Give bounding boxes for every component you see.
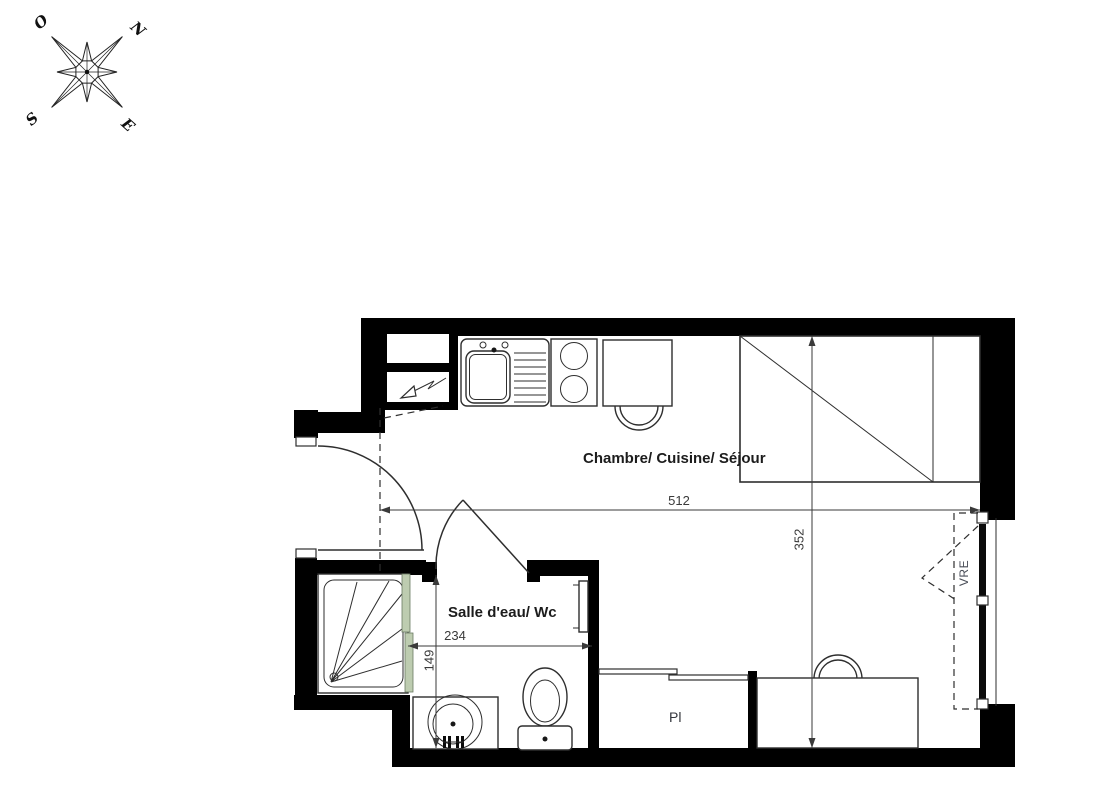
shutter-zone-dashed [954,513,978,709]
window-glazing-bottom [979,604,986,700]
closet-sliding-doors [599,669,748,680]
kitchen-desk [603,340,672,406]
floor-plan-page: O N S E [0,0,1108,800]
kitchen-sink [461,339,549,406]
main-room-label: Chambre/ Cuisine/ Séjour [583,450,766,467]
floor-plan [0,0,1108,800]
entrance-door-swing [318,446,422,550]
window [922,512,996,709]
shower-glass-top [402,574,410,632]
washbasin [413,695,498,749]
kitchen-table [603,340,672,430]
dim-main-width: 512 [659,493,699,508]
technical-closet [361,318,458,410]
dim-main-depth: 352 [792,520,807,560]
closet-label: Pl [669,709,681,725]
shower-glass-bottom [405,633,413,692]
bathroom-door [436,500,529,573]
desk [757,655,918,748]
toilet [518,668,572,750]
bed [740,336,980,482]
sink-drain-dot [492,348,497,353]
bathroom-label: Salle d'eau/ Wc [448,604,557,621]
window-shutter-label: VRE [957,553,971,593]
door-frame-bottom [296,549,316,558]
dim-bathroom-width: 234 [435,628,475,643]
flush-button [543,737,548,742]
bathroom-door-leaf [463,500,529,573]
shower [318,574,413,693]
towel-radiator [573,581,588,632]
window-glazing-top [979,524,986,598]
door-frame-top [296,437,316,446]
dim-bathroom-depth: 149 [422,641,437,681]
cooktop [551,339,597,406]
